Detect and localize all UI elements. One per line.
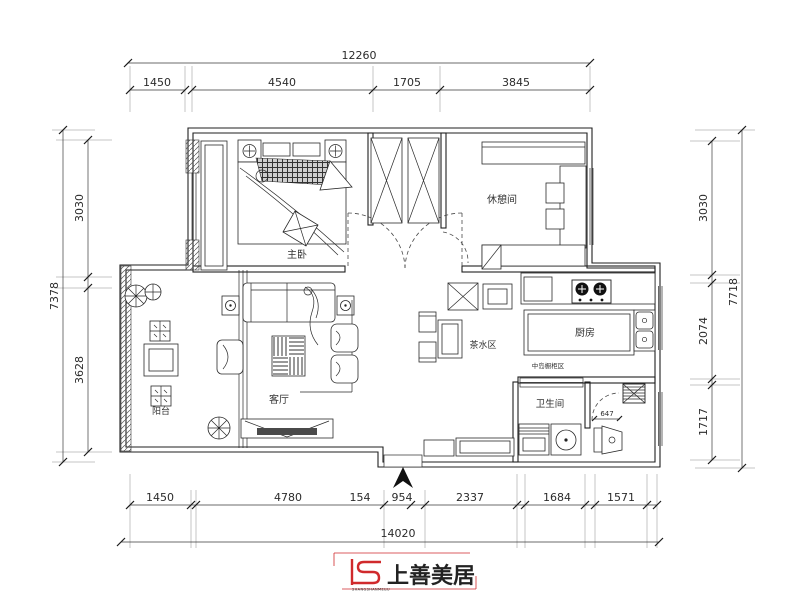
balcony-furniture [125,284,178,406]
label-balcony: 阳台 [152,405,170,416]
dim-toilet-647: 647 [592,410,622,421]
svg-text:7378: 7378 [48,282,61,310]
svg-text:1450: 1450 [146,491,174,504]
label-living-room: 客厅 [269,393,289,406]
brand-logo: SHANGSHANMEIJU 上善美居 [334,553,476,592]
svg-text:2074: 2074 [697,317,710,345]
label-lounge: 休憩间 [487,193,517,206]
bathroom-furniture [519,384,645,455]
dim-top: 12260 1450 4540 1705 3845 [124,49,594,112]
svg-text:2337: 2337 [456,491,484,504]
dim-right: 3030 2074 1717 7718 [690,126,755,472]
dim-bottom: 1450 4780 154 954 2337 1684 1571 14020 [117,474,663,548]
svg-text:647: 647 [600,410,613,418]
window-kitchen-right [655,286,662,350]
label-kitchen: 厨房 [575,326,595,339]
svg-text:1717: 1717 [697,408,710,436]
svg-text:954: 954 [392,491,413,504]
bed [238,140,352,255]
floor-plan-canvas: 主卧 休憩间 茶水区 [0,0,800,600]
entry-threshold [384,455,422,467]
svg-text:4780: 4780 [274,491,302,504]
svg-text:4540: 4540 [268,76,296,89]
svg-text:154: 154 [350,491,371,504]
window-bathroom-top [520,378,583,387]
entry-arrow [393,467,413,488]
brand-monogram-icon [352,559,381,585]
kitchen-furniture [521,273,655,355]
floor-plan-page: 主卧 休憩间 茶水区 [0,0,800,600]
label-master-bedroom: 主卧 [287,248,307,261]
bedroom-double-door [348,213,462,268]
svg-text:3030: 3030 [697,194,710,222]
brand-caption: SHANGSHANMEIJU [352,588,390,592]
svg-text:3628: 3628 [73,356,86,384]
window-bathroom-right [655,392,662,446]
living-room-furniture [208,283,358,439]
lounge-door [443,232,468,263]
tea-area-furniture [419,283,512,362]
dim-left: 7378 3030 3628 [48,126,112,466]
svg-text:1571: 1571 [607,491,635,504]
brand-name: 上善美居 [387,563,475,588]
hall-closets [371,138,439,223]
svg-text:3845: 3845 [502,76,530,89]
wardrobe-bedroom [201,141,227,270]
label-kitchen-note: 中岛橱柜区 [532,361,565,370]
svg-text:1705: 1705 [393,76,421,89]
svg-text:1684: 1684 [543,491,571,504]
label-tea-area: 茶水区 [469,339,496,350]
svg-text:1450: 1450 [143,76,171,89]
svg-text:7718: 7718 [727,278,740,306]
svg-text:14020: 14020 [381,527,416,540]
label-bathroom: 卫生间 [536,398,565,410]
entry-cabinets [424,438,514,456]
svg-text:12260: 12260 [342,49,377,62]
svg-text:3030: 3030 [73,194,86,222]
